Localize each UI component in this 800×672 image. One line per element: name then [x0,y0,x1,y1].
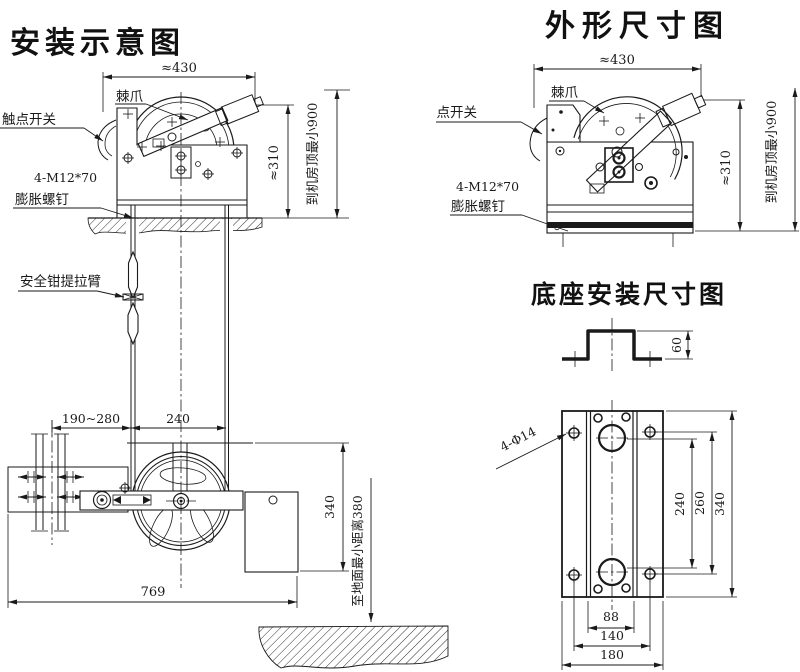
dim-plate-height: 340 [712,492,727,516]
dim-channel-height: 60 [669,337,684,353]
tension-arm [80,491,243,510]
dim-total-width: 769 [141,585,166,600]
label-contact-switch: 触点开关 [2,112,56,128]
label-anchor-name: 膨胀螺钉 [15,192,69,208]
guide-rail [31,434,69,531]
dim-rope-span: 240 [166,411,190,426]
dim-body-height: ≈310 [267,145,282,181]
dim-to-floor: 至地面最小距离380 [350,495,365,606]
dim-hole-span-v: 260 [692,491,707,515]
base-plate [562,400,663,610]
dim-slot-span: 240 [672,492,687,516]
dim-top-width: ≈430 [161,61,197,76]
dim-body-height-r: ≈310 [719,150,734,186]
contact-switch-bracket [98,120,116,160]
base-diagram: 底座安装尺寸图 60 [496,280,737,670]
dim-top-width-r: ≈430 [599,53,635,68]
installation-diagram: 安装示意图 [0,26,448,668]
label-pawl: 棘爪 [116,89,143,105]
base-title: 底座安装尺寸图 [531,280,727,309]
bracket-bolts [18,471,84,503]
rope-turnbuckle [123,252,143,344]
dim-rail-to-rope: 190~280 [62,411,120,426]
label-safety-arm: 安全钳提拉臂 [20,273,101,290]
outline-diagram: 外形尺寸图 [413,9,799,247]
hat-profile: 60 [562,318,693,372]
drawing-canvas: 安装示意图 [0,0,800,672]
contact-switch-bracket-r [530,118,547,161]
label-anchor-spec-r: 4-M12*70 [456,179,519,194]
label-anchor-spec: 4-M12*70 [34,170,97,185]
hole-callout: 4-Φ14 [496,424,566,469]
ground-hatch [259,626,448,668]
outline-title: 外形尺寸图 [545,9,730,44]
dim-inner-width: 88 [603,609,619,624]
label-holes: 4-Φ14 [497,424,538,455]
dim-tension-height: 340 [322,495,337,519]
dim-to-ceiling: 到机房顶最小900 [305,103,321,206]
label-anchor-name-r: 膨胀螺钉 [451,199,505,215]
installation-title: 安装示意图 [10,26,185,61]
machine-room-slab [88,218,262,235]
governor-rope-left [131,205,135,497]
tension-device [8,434,298,572]
clip-patch [413,102,436,119]
dim-hole-span-h: 140 [600,628,624,643]
governor-rope-right [225,205,229,492]
governor-installation-drawing: 安装示意图 [0,0,800,672]
dim-plate-width: 180 [600,647,624,662]
dim-to-ceiling-r: 到机房顶最小900 [764,101,780,204]
label-pawl-r: 棘爪 [551,85,579,101]
